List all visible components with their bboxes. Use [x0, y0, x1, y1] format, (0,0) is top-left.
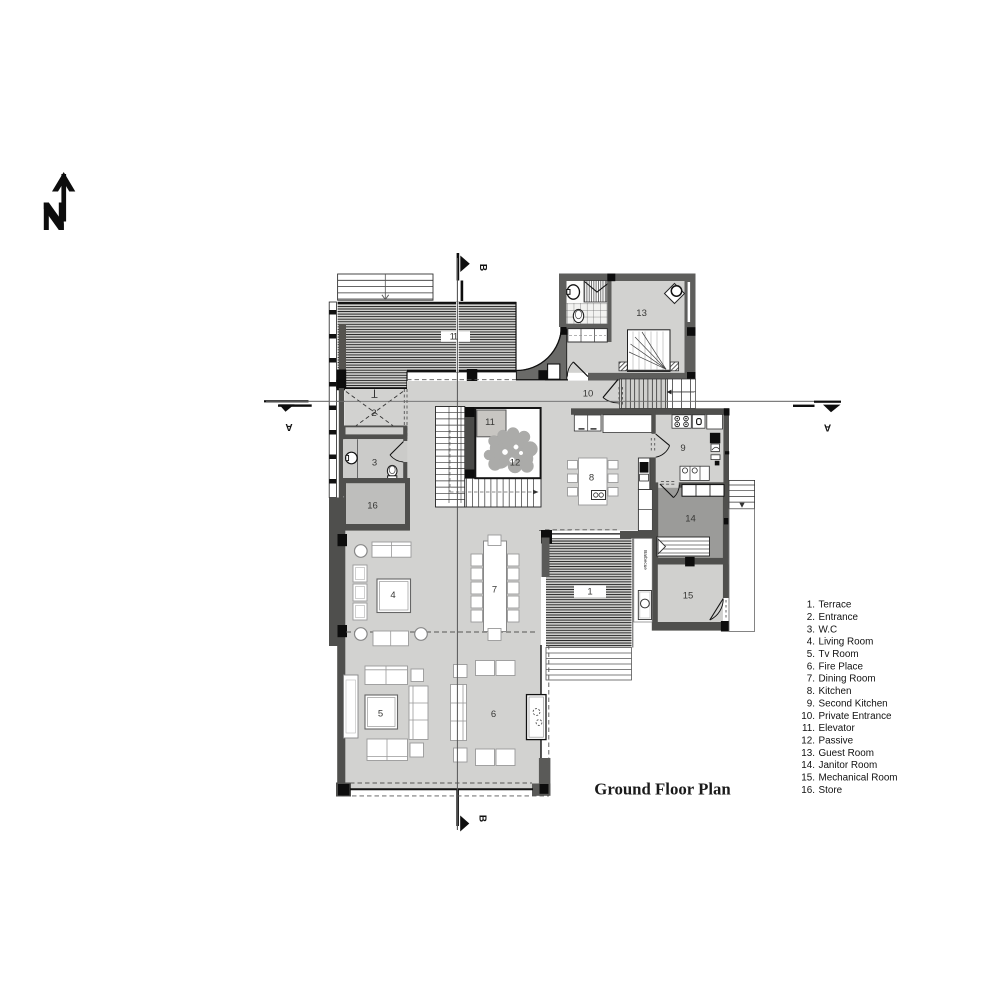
svg-text:Terrace: Terrace	[819, 600, 852, 611]
svg-text:10: 10	[583, 389, 594, 400]
svg-text:8.: 8.	[807, 686, 815, 697]
svg-text:2.: 2.	[807, 612, 815, 623]
svg-text:1: 1	[587, 587, 592, 598]
svg-text:3.: 3.	[807, 624, 815, 635]
svg-text:9: 9	[680, 443, 685, 454]
svg-text:16.: 16.	[801, 785, 815, 796]
svg-text:5.: 5.	[807, 649, 815, 660]
svg-text:10.: 10.	[801, 711, 815, 722]
svg-text:15.: 15.	[801, 773, 815, 784]
svg-text:Kitchen: Kitchen	[819, 686, 852, 697]
svg-text:14.: 14.	[801, 760, 815, 771]
svg-text:5: 5	[378, 709, 383, 720]
svg-text:Private Entrance: Private Entrance	[819, 711, 893, 722]
svg-text:11: 11	[485, 417, 495, 428]
svg-text:Janitor Room: Janitor Room	[819, 760, 878, 771]
svg-text:4: 4	[390, 590, 395, 601]
svg-text:Mechanical Room: Mechanical Room	[819, 773, 898, 784]
svg-text:1.: 1.	[807, 600, 815, 611]
svg-text:8: 8	[589, 473, 594, 484]
svg-text:6.: 6.	[807, 661, 815, 672]
svg-text:Tv Room: Tv Room	[819, 649, 859, 660]
svg-text:A: A	[285, 421, 292, 432]
svg-text:Dining Room: Dining Room	[819, 674, 876, 685]
svg-text:Elevator: Elevator	[819, 723, 856, 734]
svg-text:Barbecue: Barbecue	[643, 550, 648, 570]
svg-text:11.: 11.	[802, 723, 815, 734]
svg-text:2: 2	[371, 408, 376, 419]
svg-text:15: 15	[683, 591, 694, 602]
svg-text:12.: 12.	[801, 735, 815, 746]
svg-text:12: 12	[510, 458, 521, 469]
svg-text:Ground Floor Plan: Ground Floor Plan	[594, 780, 731, 799]
svg-text:7: 7	[492, 585, 497, 596]
svg-text:7.: 7.	[807, 674, 815, 685]
svg-text:Store: Store	[819, 785, 843, 796]
svg-text:9.: 9.	[807, 698, 815, 709]
svg-text:Second Kitchen: Second Kitchen	[819, 698, 888, 709]
svg-text:A: A	[824, 422, 831, 433]
svg-text:1: 1	[453, 332, 458, 343]
svg-text:6: 6	[491, 709, 496, 720]
svg-text:14: 14	[685, 514, 696, 525]
svg-text:Fire Place: Fire Place	[819, 661, 864, 672]
svg-text:Entrance: Entrance	[819, 612, 859, 623]
svg-text:W.C: W.C	[819, 624, 838, 635]
svg-text:B: B	[477, 264, 488, 271]
svg-text:B: B	[477, 815, 488, 822]
svg-text:13.: 13.	[801, 748, 815, 759]
svg-text:Living Room: Living Room	[819, 637, 874, 648]
svg-text:13: 13	[636, 308, 647, 319]
svg-text:16: 16	[367, 501, 378, 512]
svg-text:Guest Room: Guest Room	[819, 748, 874, 759]
svg-text:3: 3	[372, 458, 377, 469]
svg-text:Passive: Passive	[819, 735, 854, 746]
svg-text:4.: 4.	[807, 637, 815, 648]
